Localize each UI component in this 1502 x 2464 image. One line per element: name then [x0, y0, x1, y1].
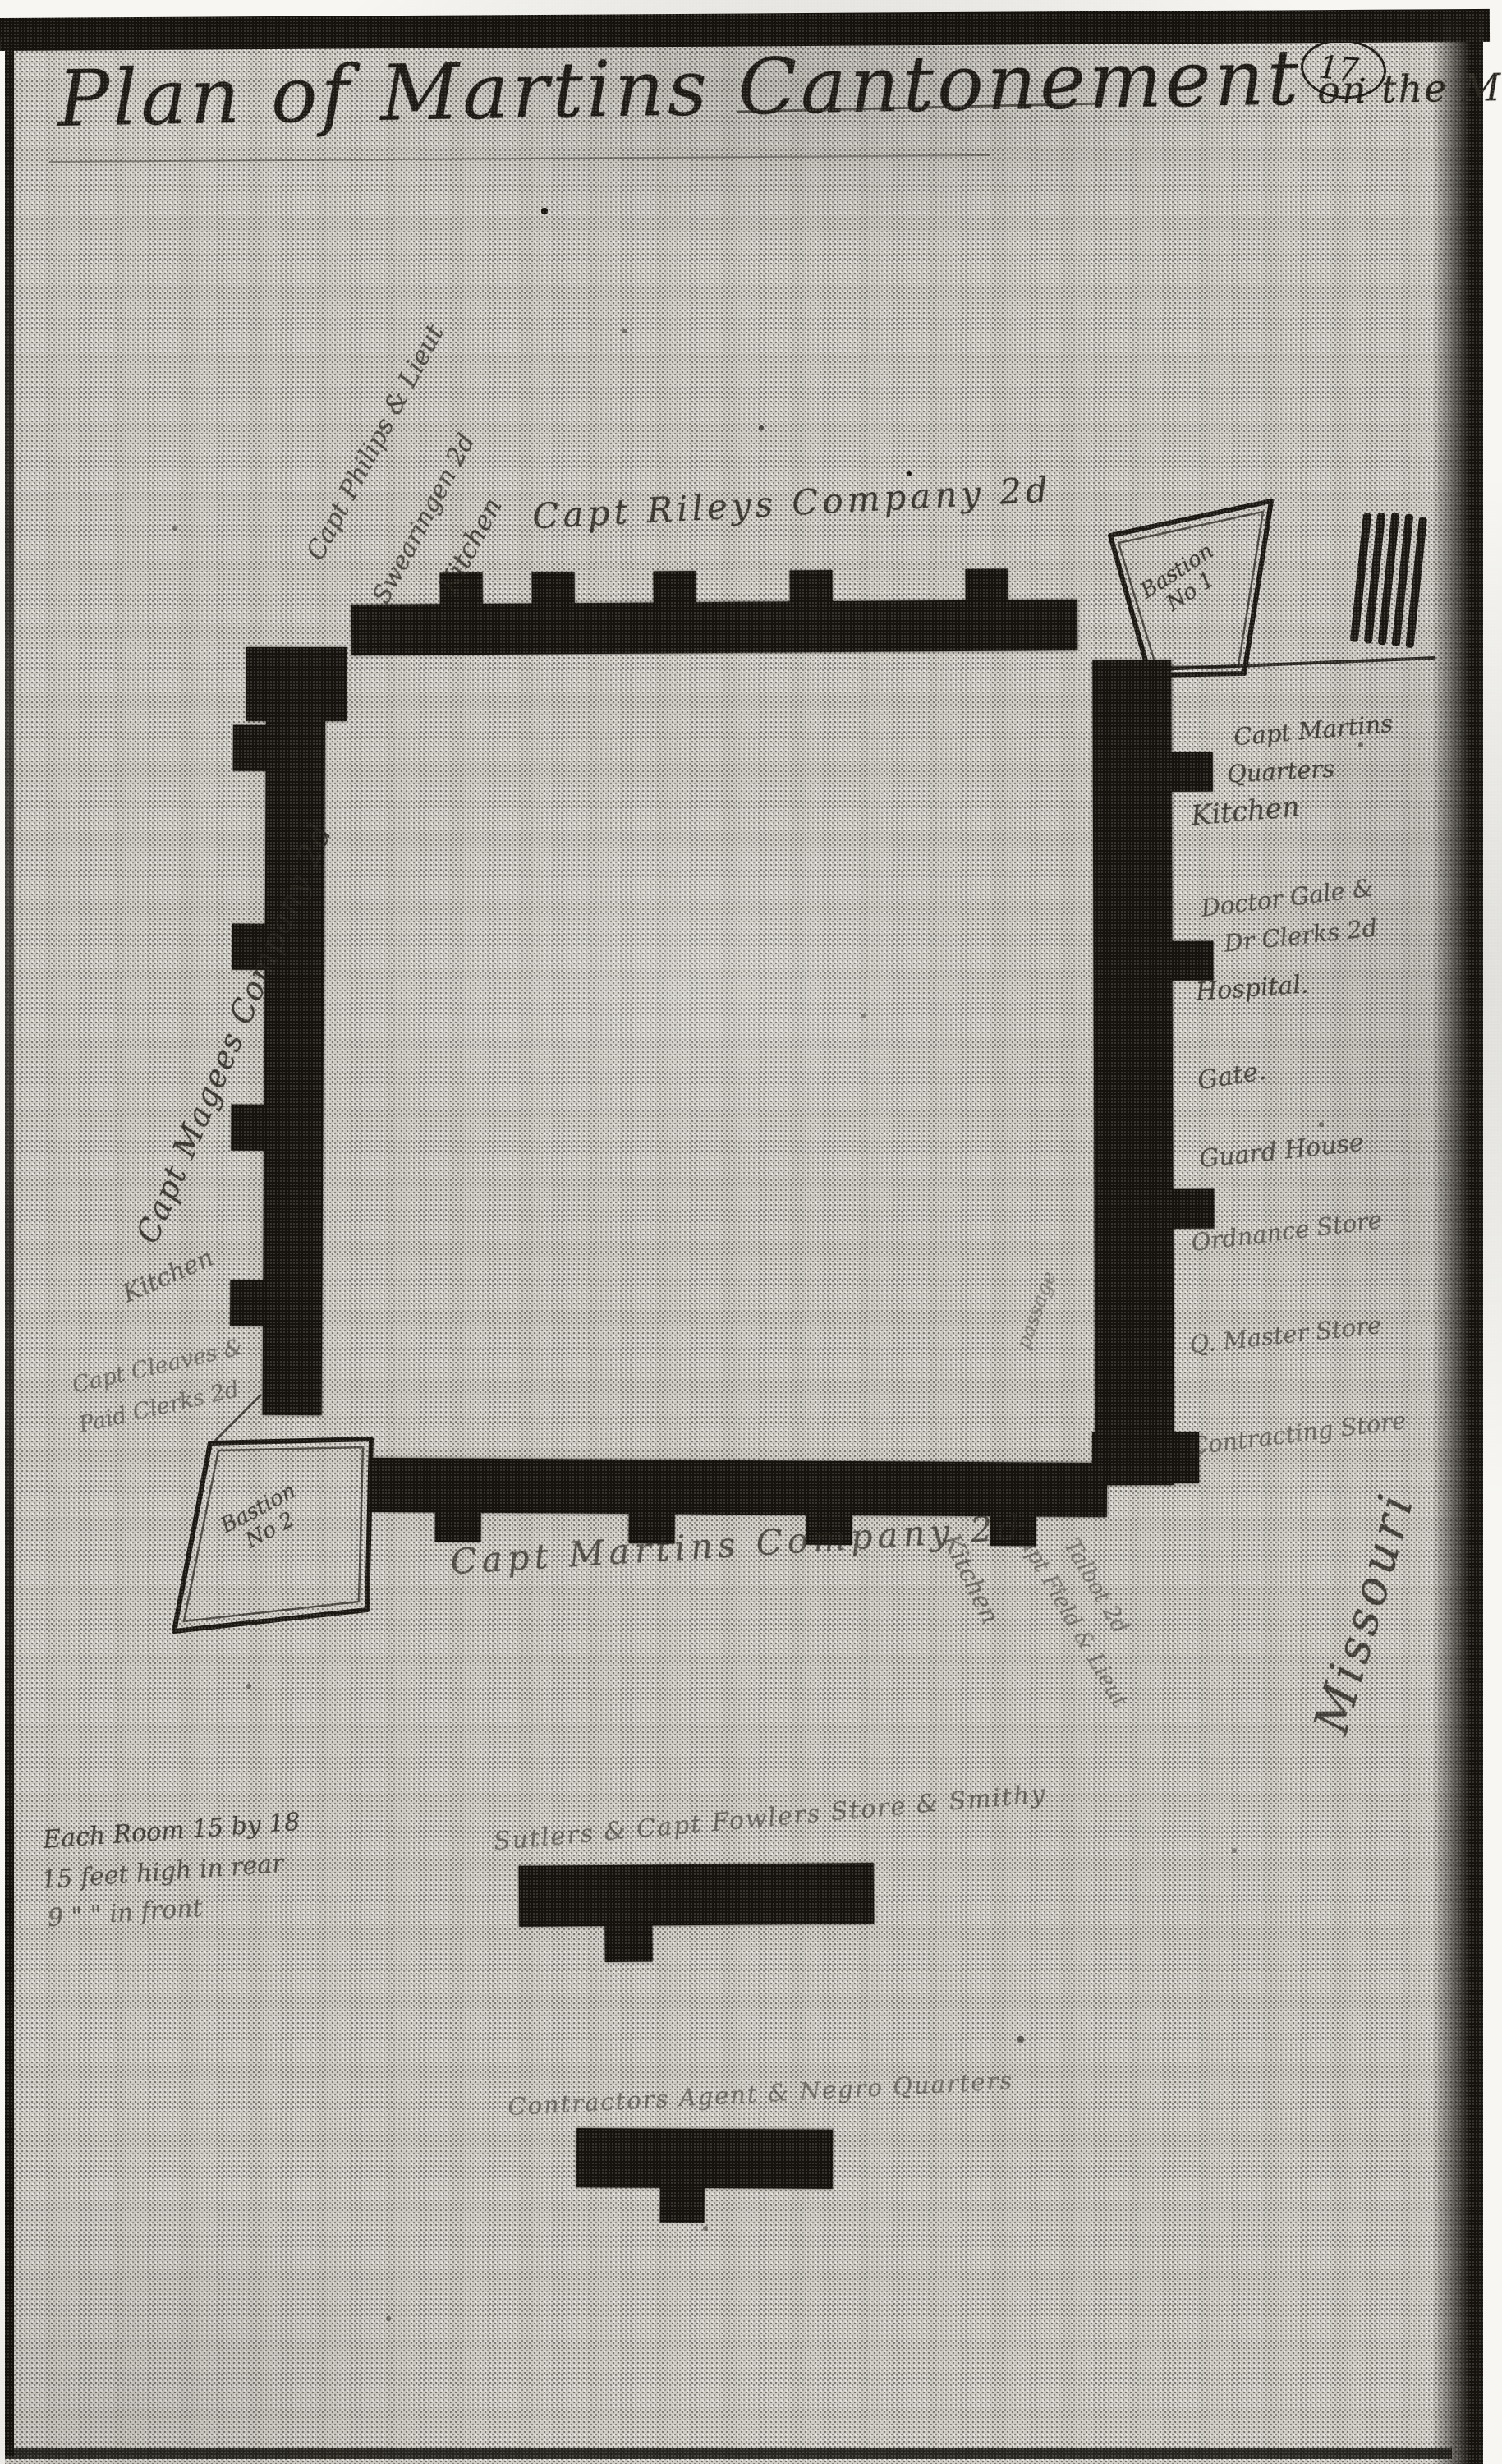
- west-chimney: [233, 725, 268, 771]
- west-chimney: [231, 1105, 265, 1151]
- east-barracks: [1092, 660, 1174, 1485]
- sutlers-chimney: [604, 1924, 652, 1962]
- east-chimney: [1170, 941, 1213, 981]
- north-chimney: [532, 572, 575, 605]
- north-barracks: [351, 600, 1077, 655]
- north-chimney: [654, 571, 696, 604]
- page-bottom-border: [5, 2448, 1452, 2459]
- west-barracks: [263, 651, 326, 1415]
- east-chimney: [1170, 752, 1213, 792]
- contractors-chimney: [660, 2186, 705, 2223]
- sutlers-building: [519, 1863, 875, 1927]
- north-chimney: [966, 569, 1008, 602]
- page-left-border: [5, 25, 14, 2456]
- book-gutter-shadow: [1432, 20, 1483, 2464]
- page-number: 17.: [1317, 48, 1370, 89]
- ink-specks: [0, 0, 2, 2]
- east-chimney: [1171, 1189, 1214, 1229]
- scanned-plan-page: Plan of Martins Cantonement on the Misso…: [0, 0, 1502, 2464]
- east-barracks-foot: [1092, 1432, 1199, 1483]
- contractors-building: [576, 2128, 833, 2189]
- west-chimney: [230, 1280, 264, 1326]
- south-chimney: [435, 1510, 481, 1542]
- north-chimney: [790, 570, 833, 603]
- east-label-quarters: Quarters: [1226, 755, 1335, 788]
